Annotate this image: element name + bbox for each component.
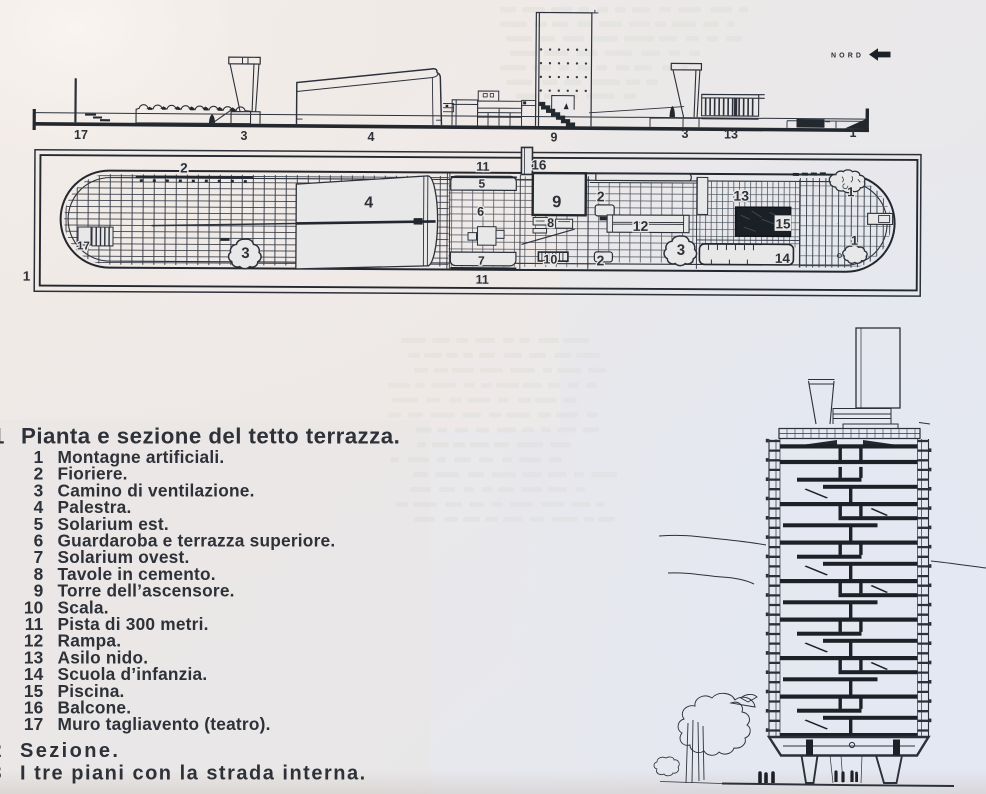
svg-text:17: 17 [77, 240, 90, 252]
svg-text:8: 8 [547, 216, 554, 230]
svg-text:2: 2 [0, 740, 2, 762]
svg-text:14: 14 [775, 251, 791, 266]
svg-text:3: 3 [682, 127, 689, 141]
svg-text:6: 6 [477, 205, 484, 219]
svg-text:3: 3 [677, 242, 685, 259]
svg-text:17: 17 [74, 128, 88, 142]
svg-text:I tre piani con la strada inte: I tre piani con la strada interna. [20, 763, 367, 785]
svg-text:3: 3 [241, 245, 249, 262]
svg-text:17: 17 [24, 714, 44, 734]
svg-text:12: 12 [633, 218, 649, 234]
svg-text:16: 16 [531, 157, 547, 172]
svg-text:Pianta e sezione del tetto ter: Pianta e sezione del tetto terrazza. [21, 424, 400, 449]
svg-text:3: 3 [241, 129, 248, 143]
svg-text:4: 4 [368, 130, 375, 144]
svg-text:7: 7 [478, 254, 485, 268]
svg-text:11: 11 [476, 273, 489, 287]
svg-text:11: 11 [476, 160, 489, 174]
svg-text:3: 3 [0, 763, 2, 785]
svg-text:9: 9 [552, 193, 561, 211]
svg-text:9: 9 [551, 131, 558, 145]
svg-text:2: 2 [596, 252, 604, 268]
svg-text:15: 15 [776, 216, 792, 231]
svg-text:Muro tagliavento (teatro).: Muro tagliavento (teatro). [58, 714, 271, 734]
svg-text:10: 10 [543, 253, 557, 267]
svg-text:NORD: NORD [831, 53, 864, 60]
svg-text:13: 13 [733, 188, 749, 204]
svg-text:2: 2 [597, 188, 605, 204]
svg-text:1: 1 [847, 184, 854, 199]
svg-text:1: 1 [850, 126, 857, 140]
svg-text:13: 13 [724, 128, 738, 142]
svg-text:1: 1 [23, 269, 31, 284]
svg-text:4: 4 [364, 195, 373, 212]
svg-text:5: 5 [478, 177, 485, 191]
svg-text:1: 1 [851, 233, 858, 248]
svg-text:2: 2 [180, 161, 188, 176]
svg-text:1: 1 [0, 424, 4, 449]
svg-text:Sezione.: Sezione. [20, 740, 120, 762]
